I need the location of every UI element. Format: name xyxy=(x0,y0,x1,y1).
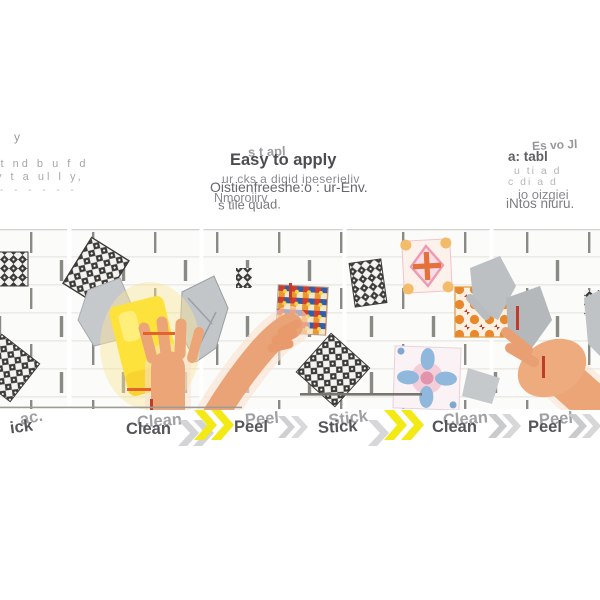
subtext-line: iNtos niuru. xyxy=(506,196,574,211)
chevron-right-icon xyxy=(488,412,524,444)
chevron-right-icon xyxy=(568,412,600,444)
pink-blue-floral-tile-sticker xyxy=(393,346,461,410)
step-label-clean: Clean Clean xyxy=(126,420,171,439)
accent-dash xyxy=(542,356,545,378)
pink-diamond-tile-sticker xyxy=(400,237,454,295)
accent-dash xyxy=(516,306,519,330)
step-label-stick: Stick Stick xyxy=(318,417,358,438)
left-text-line: st nd b u f d xyxy=(0,158,88,170)
chevron-right-icon xyxy=(176,408,238,450)
subtext-line: s tile quad. xyxy=(218,196,281,212)
step-label-partial: ac. ick xyxy=(9,417,34,439)
step-label-peel: Peel Peel xyxy=(234,418,268,437)
panel-bottom-rule xyxy=(300,393,422,396)
tile-panels-illustration xyxy=(0,228,600,410)
bw-pattern-tile-fragment xyxy=(236,268,252,288)
chevron-right-icon xyxy=(278,414,312,444)
bw-pattern-tile-sticker xyxy=(349,259,387,307)
left-text-mark: y xyxy=(14,130,20,144)
steps-row: ac. ick Clean Clean Peel Peel xyxy=(0,404,600,456)
chevron-right-icon xyxy=(368,408,430,450)
accent-dash xyxy=(289,283,292,301)
heading-fragment: a: tabl xyxy=(508,149,548,164)
accent-dash xyxy=(127,388,151,391)
left-text-line: y t a ul l y, xyxy=(0,171,84,183)
page-title: Easy to apply xyxy=(230,151,336,170)
accent-dash xyxy=(143,332,175,335)
product-instruction-image: y st nd b u f d y t a ul l y, - - - - - … xyxy=(0,0,600,600)
step-label-clean: Clean Clean xyxy=(432,418,477,437)
bw-pattern-tile-sticker xyxy=(0,252,28,286)
left-text-line: - - - - - - xyxy=(0,185,78,196)
step-label-peel: Peel Peel xyxy=(528,418,562,437)
